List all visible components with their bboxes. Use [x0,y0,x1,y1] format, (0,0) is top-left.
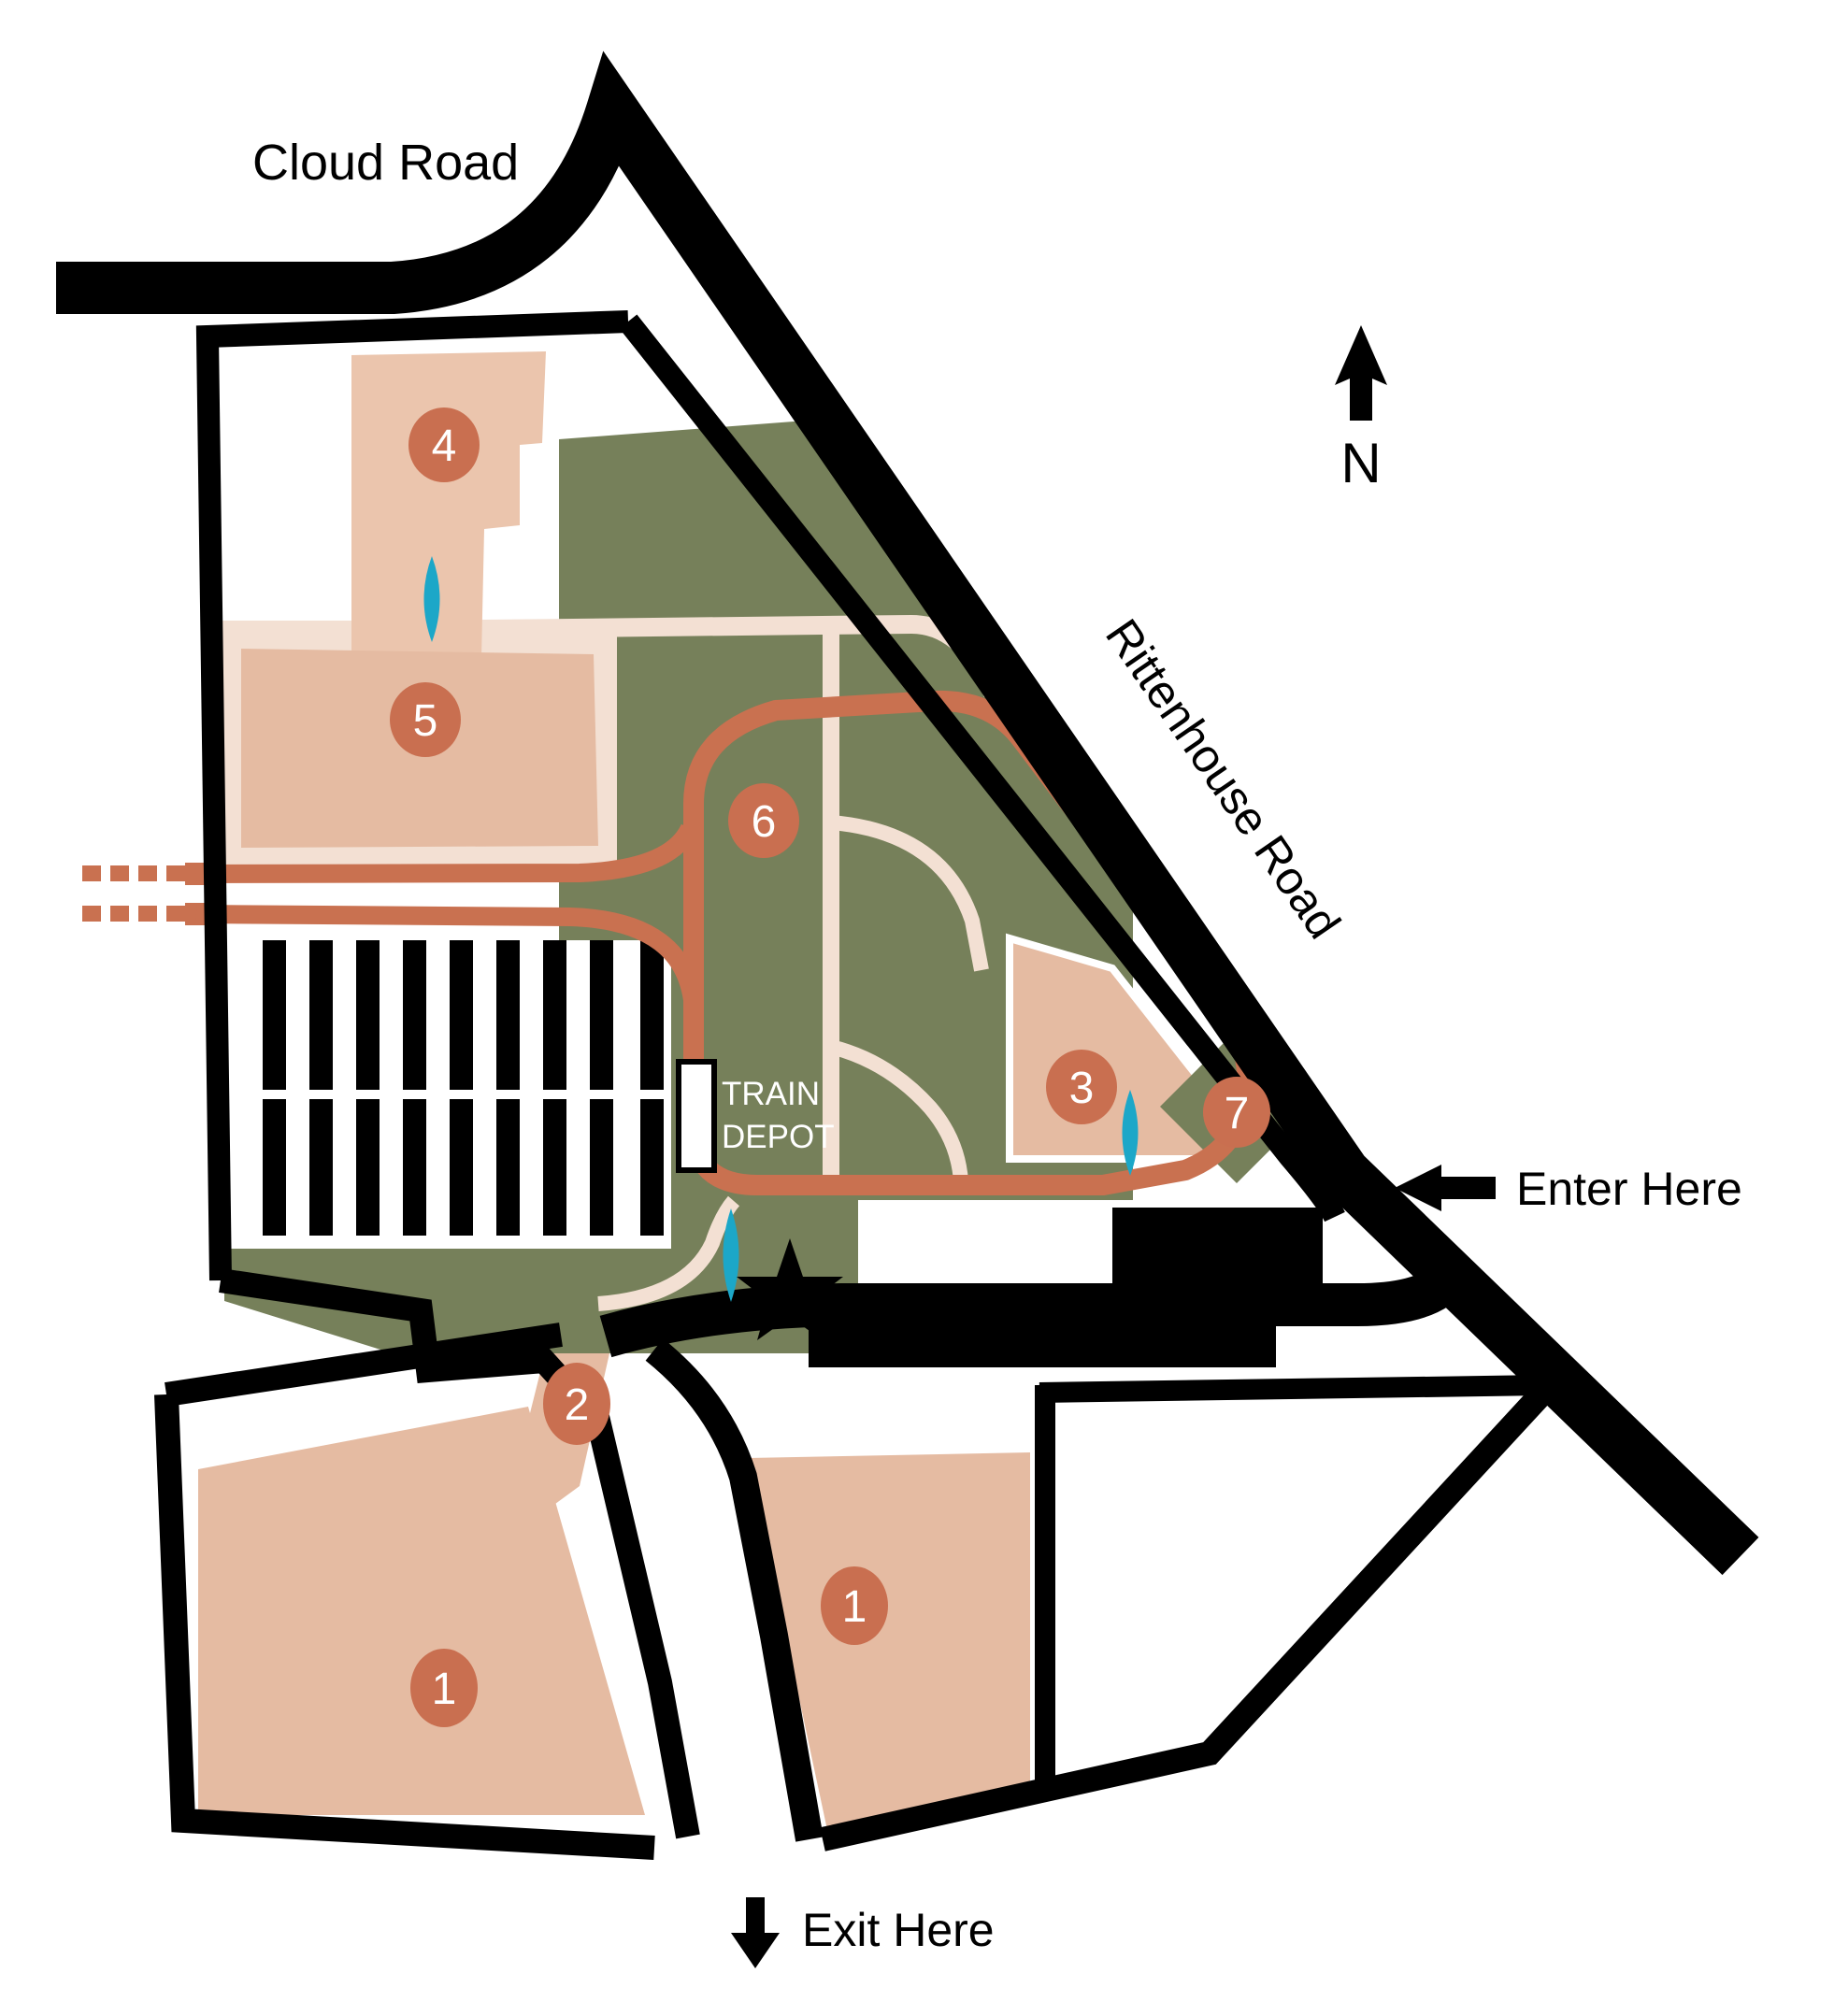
park-map-canvas: TRAIN DEPOT 4 5 6 3 7 2 [0,0,1834,2016]
svg-text:2: 2 [565,1380,590,1430]
marker-area-1-east: 1 [821,1566,888,1645]
parking-bar [640,940,664,1090]
parking-bar [543,1099,566,1236]
parking-bar [450,940,473,1090]
parking-bar [450,1099,473,1236]
compass-north-arrow-icon [1335,325,1387,421]
parking-bar [543,940,566,1090]
enter-here-label: Enter Here [1516,1163,1742,1215]
svg-text:5: 5 [413,696,438,746]
enter-here: Enter Here [1395,1163,1742,1215]
lot-area-4 [351,351,546,658]
marker-area-6: 6 [728,783,799,858]
marker-area-7: 7 [1203,1077,1270,1148]
train-depot-building [679,1062,714,1170]
exit-here-label: Exit Here [802,1904,995,1956]
svg-text:7: 7 [1225,1089,1250,1138]
svg-text:3: 3 [1069,1064,1095,1113]
compass: N [1335,325,1387,494]
marker-area-1-west: 1 [410,1649,478,1727]
parking-bar [309,1099,333,1236]
parking-bar [356,1099,380,1236]
train-depot-label-line1: TRAIN [722,1076,820,1112]
parking-bar [403,940,426,1090]
svg-text:6: 6 [752,797,777,847]
parking-bar [590,940,613,1090]
parking-bar [590,1099,613,1236]
parking-bar [496,940,520,1090]
svg-text:4: 4 [432,422,457,471]
marker-area-5: 5 [390,682,461,757]
svg-text:1: 1 [432,1665,457,1714]
exit-arrow-icon [731,1897,780,1968]
parking-bar [496,1099,520,1236]
parking-bar [403,1099,426,1236]
parking-bar [263,1099,286,1236]
compass-n-label: N [1340,432,1381,494]
marker-area-2: 2 [543,1363,610,1445]
train-depot-label-line2: DEPOT [722,1119,835,1155]
parking-bar [309,940,333,1090]
exit-here: Exit Here [731,1897,995,1968]
parking-bar [640,1099,664,1236]
marker-area-3: 3 [1046,1050,1117,1124]
marker-area-4: 4 [408,407,480,482]
park-map: TRAIN DEPOT 4 5 6 3 7 2 [0,0,1834,2016]
svg-text:1: 1 [842,1582,867,1632]
parking-bar [263,940,286,1090]
parking-rows [263,940,664,1236]
parking-bar [356,940,380,1090]
black-block-lower [809,1323,1276,1367]
cloud-road-label: Cloud Road [252,135,519,191]
boundary-east-lot-north [1039,1385,1548,1393]
